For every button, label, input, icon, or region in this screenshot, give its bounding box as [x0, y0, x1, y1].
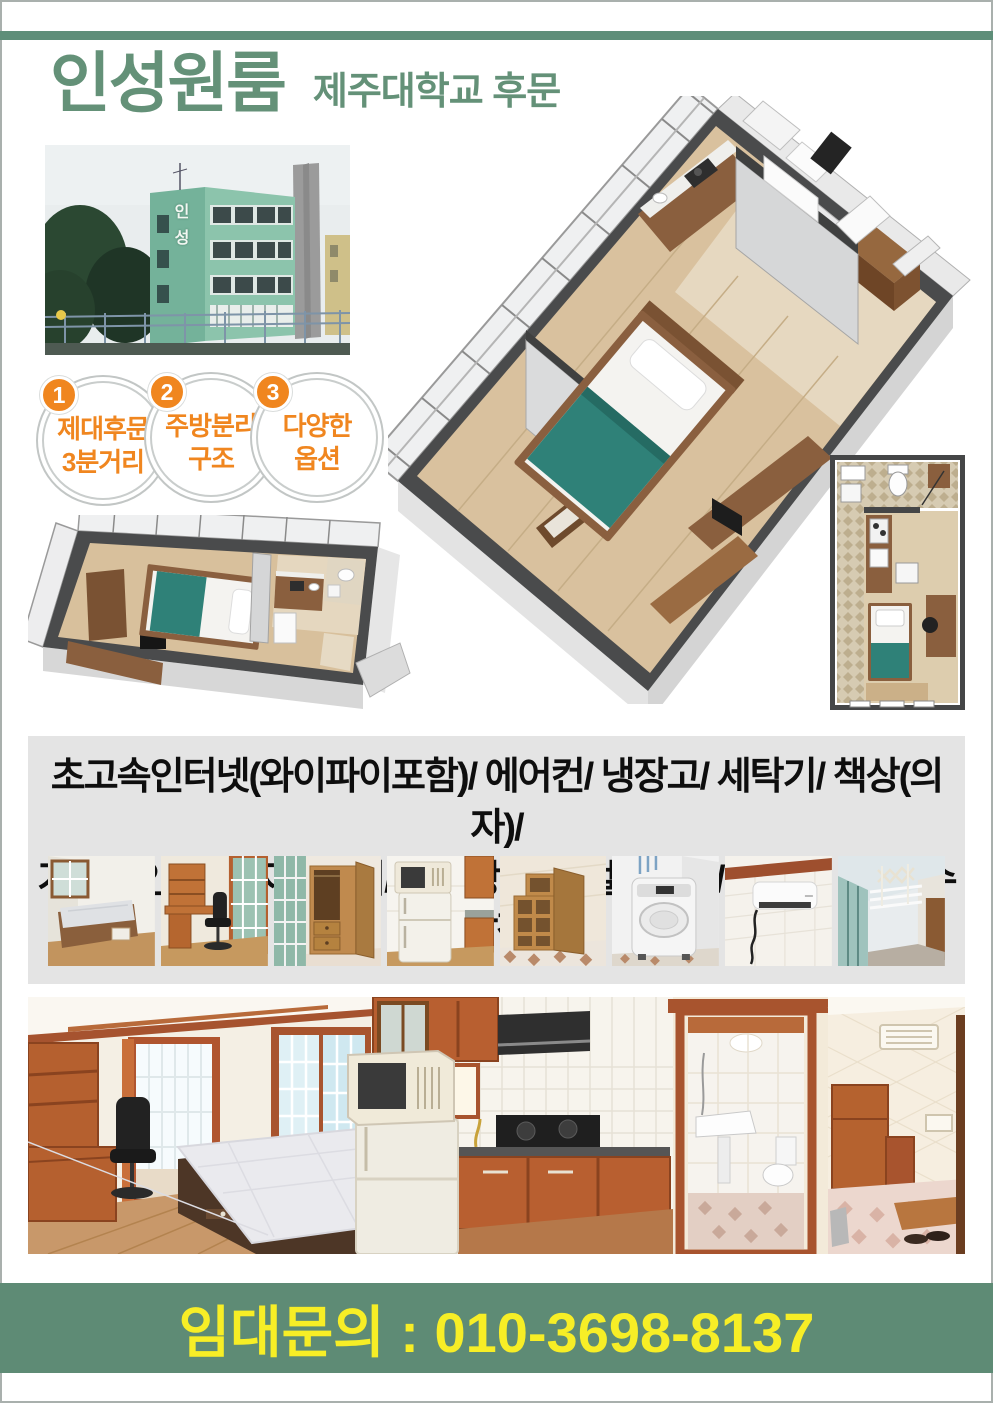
bed-photo [48, 856, 155, 966]
building-photo-illustration [45, 145, 350, 355]
entry-area [828, 997, 965, 1254]
plan-balcony [837, 491, 864, 703]
small-wardrobe [86, 569, 127, 641]
interior-panorama-photo [28, 997, 965, 1254]
contact-phone-text: 임대문의 : 010-3698-8137 [179, 1288, 815, 1369]
contact-bar: 임대문의 : 010-3698-8137 [0, 1283, 993, 1373]
page-title: 인성원룸 [50, 50, 285, 116]
building-photo: 인성 [45, 145, 350, 355]
shelf-photo [500, 856, 607, 966]
bathroom-doorway [668, 997, 828, 1254]
flyer-page: 인성원룸 제주대학교 후문 [0, 0, 993, 1403]
feature-1-line1: 제대후문 [57, 413, 149, 446]
desk-photo [161, 856, 268, 966]
small-bathroom [324, 557, 364, 605]
feature-2-line1: 주방분리 [165, 410, 257, 443]
feature-3-line2: 옵션 [294, 443, 340, 476]
photo-strip [48, 856, 945, 966]
plan-bed [868, 603, 912, 681]
amenities-section: 초고속인터넷(와이파이포함)/ 에어컨/ 냉장고/ 세탁기/ 책상(의자)/ 가… [28, 736, 965, 984]
feature-2-line2: 구조 [188, 443, 234, 476]
top-divider-rule [0, 31, 993, 40]
small-partition [250, 553, 271, 643]
dustpan [830, 1207, 849, 1247]
feature-circle-3: 3 다양한옵션 [250, 372, 384, 503]
washing-machine-photo [612, 856, 719, 966]
plan-bench [866, 683, 928, 701]
plan-bottom-windows [850, 701, 934, 707]
air-conditioner-photo [725, 856, 832, 966]
drying-rack-photo [838, 856, 945, 966]
door-edge [956, 1015, 965, 1254]
feature-badges: 1 제대후문3분거리 2 주방분리구조 3 다양한옵션 [36, 372, 386, 502]
building-sign-text: 인성 [167, 203, 191, 255]
gas-stove [496, 1115, 600, 1151]
street-lamp [56, 310, 66, 320]
floorplan-top-view [830, 455, 965, 710]
3d-floorplan-small [28, 515, 413, 727]
plan-desk [922, 595, 956, 657]
small-bed [139, 564, 267, 650]
small-fridge [274, 613, 296, 643]
fridge-and-microwave [348, 1051, 458, 1254]
amenities-line-1: 초고속인터넷(와이파이포함)/ 에어컨/ 냉장고/ 세탁기/ 책상(의자)/ [28, 752, 965, 855]
toilet [763, 1164, 793, 1186]
countertop [458, 1147, 670, 1157]
range-hood [498, 1011, 590, 1055]
fridge-microwave-photo [387, 856, 494, 966]
wardrobe-photo [274, 856, 381, 966]
feature-3-line1: 다양한 [283, 410, 352, 443]
feature-1-line2: 3분거리 [62, 446, 144, 479]
